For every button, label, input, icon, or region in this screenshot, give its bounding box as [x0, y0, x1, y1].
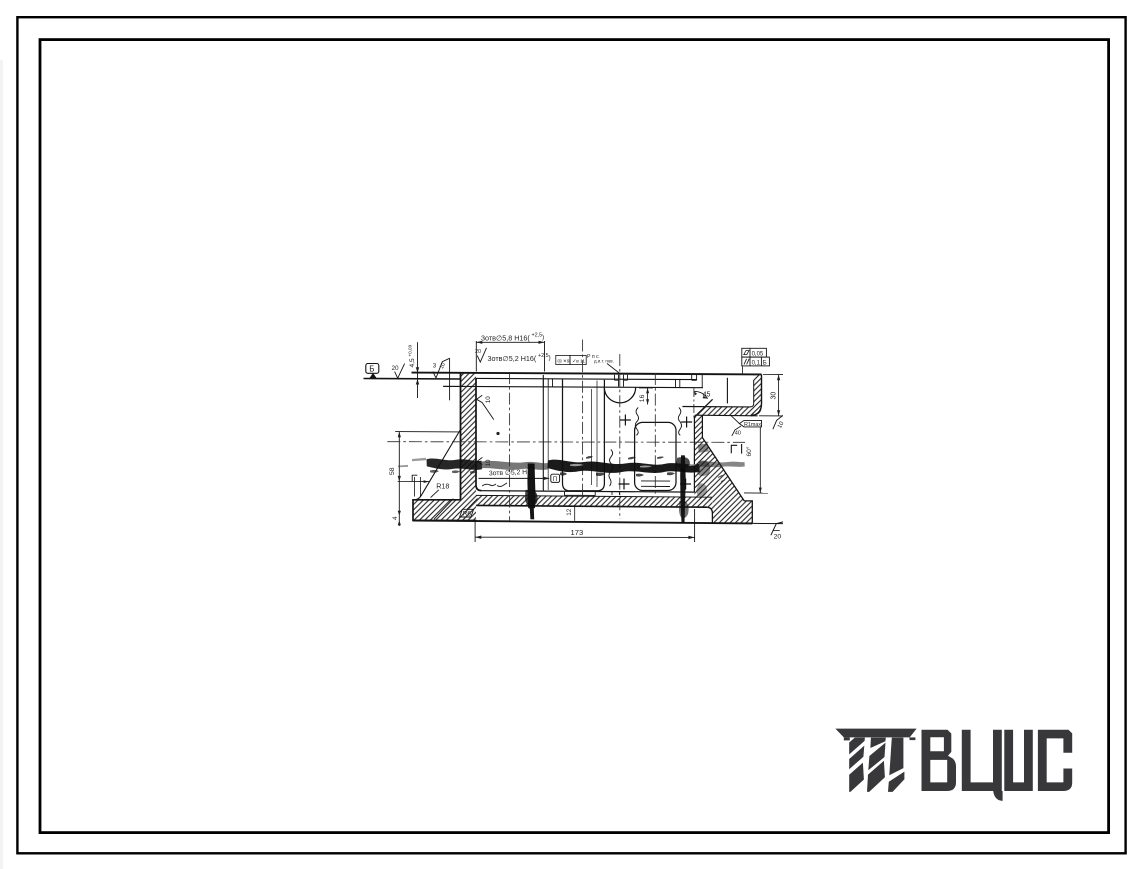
- svg-text:12: 12: [566, 508, 573, 516]
- svg-text:60°: 60°: [745, 446, 753, 456]
- svg-text:П: П: [553, 476, 557, 483]
- svg-text:R6: R6: [463, 511, 472, 518]
- svg-text:R1max: R1max: [744, 422, 761, 428]
- svg-text:Б: Б: [763, 360, 767, 366]
- svg-text:20: 20: [475, 349, 481, 355]
- svg-text:д.и.т. пов.: д.и.т. пов.: [594, 359, 614, 364]
- svg-text:4: 4: [392, 516, 399, 520]
- svg-text:16: 16: [639, 394, 646, 402]
- svg-text:R18: R18: [436, 482, 449, 491]
- svg-text:20: 20: [392, 365, 400, 372]
- svg-text:✓в 11: ✓в 11: [572, 358, 585, 364]
- svg-text:3отв∅5,2 Н16(: 3отв∅5,2 Н16(: [488, 354, 537, 363]
- svg-text:+2,5: +2,5: [538, 353, 549, 359]
- svg-text:30: 30: [770, 392, 777, 400]
- svg-text:Б: Б: [369, 365, 374, 374]
- svg-text:173: 173: [571, 528, 584, 537]
- svg-text:+0,09: +0,09: [408, 344, 413, 356]
- svg-text:10: 10: [485, 396, 492, 403]
- svg-text:10: 10: [777, 420, 786, 429]
- svg-text:+2,5: +2,5: [532, 333, 543, 339]
- svg-text:◎: ◎: [557, 359, 562, 365]
- svg-text:): ): [549, 354, 551, 361]
- svg-text:3: 3: [433, 362, 437, 369]
- svg-text:58: 58: [389, 467, 396, 475]
- svg-text:3отв ∅5,2 Н: 3отв ∅5,2 Н: [489, 469, 528, 477]
- svg-text:10: 10: [439, 362, 447, 370]
- svg-text:20: 20: [774, 534, 782, 541]
- svg-text:4,5: 4,5: [409, 358, 416, 367]
- svg-text:40: 40: [735, 431, 741, 437]
- svg-text:): ): [542, 334, 544, 341]
- svg-text:✕9: ✕9: [563, 358, 570, 363]
- svg-text:0,1: 0,1: [752, 360, 761, 366]
- svg-text:3отв∅5,8 Н16(: 3отв∅5,8 Н16(: [481, 334, 530, 343]
